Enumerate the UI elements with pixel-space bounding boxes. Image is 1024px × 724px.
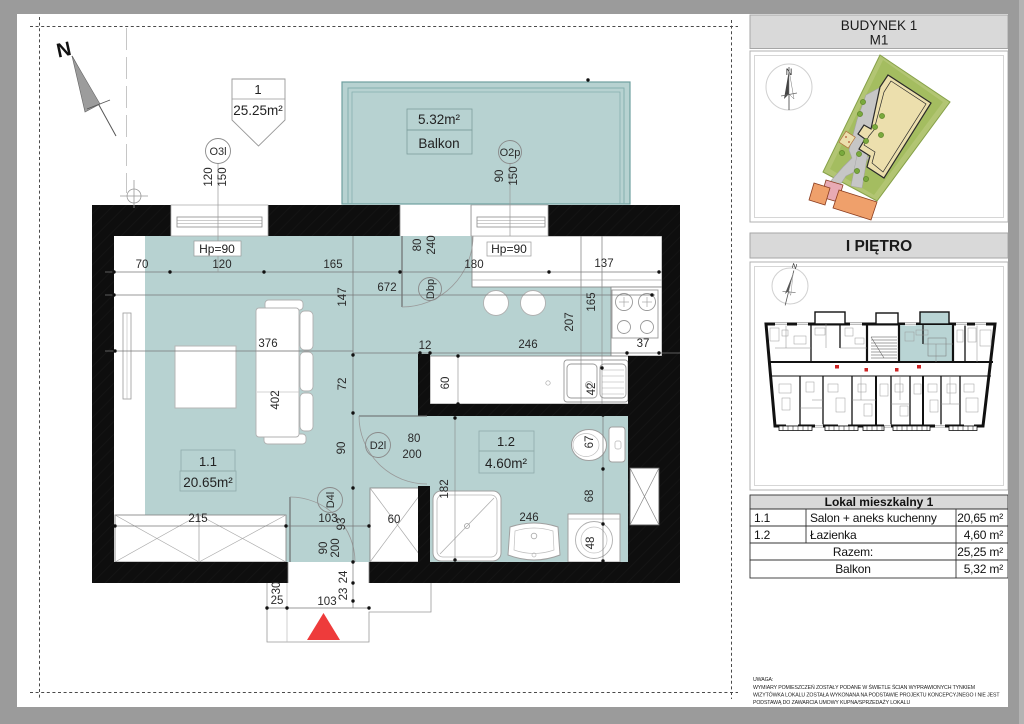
svg-text:68: 68 [584, 490, 596, 503]
svg-text:207: 207 [564, 312, 576, 331]
svg-text:103: 103 [317, 596, 336, 608]
svg-text:80: 80 [408, 433, 421, 445]
svg-text:4,60 m²: 4,60 m² [964, 528, 1003, 542]
svg-text:137: 137 [594, 258, 613, 270]
svg-text:67: 67 [584, 436, 596, 449]
svg-text:1.1: 1.1 [199, 454, 217, 469]
svg-text:60: 60 [388, 514, 401, 526]
svg-text:182: 182 [439, 479, 451, 498]
svg-text:376: 376 [258, 338, 277, 350]
svg-text:150: 150 [508, 166, 520, 185]
svg-text:20,65 m²: 20,65 m² [957, 511, 1003, 525]
svg-text:165: 165 [586, 292, 598, 311]
svg-text:48: 48 [585, 537, 597, 550]
svg-text:90: 90 [318, 542, 330, 555]
svg-text:150: 150 [217, 167, 229, 186]
svg-text:1.2: 1.2 [754, 528, 771, 542]
svg-text:402: 402 [270, 390, 282, 409]
svg-text:Dbp: Dbp [425, 279, 437, 299]
svg-text:672: 672 [377, 282, 396, 294]
svg-text:1.2: 1.2 [497, 434, 515, 449]
svg-text:90: 90 [494, 170, 506, 183]
svg-text:Balkon: Balkon [418, 136, 459, 151]
svg-text:M1: M1 [870, 33, 889, 48]
svg-text:180: 180 [464, 259, 483, 271]
svg-text:Balkon: Balkon [835, 562, 871, 576]
svg-text:93: 93 [336, 518, 348, 531]
svg-text:215: 215 [188, 513, 207, 525]
svg-text:5,32 m²: 5,32 m² [964, 562, 1003, 576]
svg-text:72: 72 [337, 378, 349, 391]
svg-text:246: 246 [519, 512, 538, 524]
svg-text:60: 60 [440, 377, 452, 390]
svg-text:5.32m²: 5.32m² [418, 112, 461, 127]
svg-text:Hp=90: Hp=90 [491, 242, 527, 256]
svg-text:D2l: D2l [370, 440, 387, 452]
svg-text:200: 200 [330, 538, 342, 557]
svg-text:200: 200 [402, 449, 421, 461]
svg-text:4.60m²: 4.60m² [485, 456, 528, 471]
svg-text:Hp=90: Hp=90 [199, 242, 235, 256]
svg-text:Razem:: Razem: [833, 545, 873, 559]
svg-text:37: 37 [637, 338, 650, 350]
svg-text:UWAGA:: UWAGA: [753, 677, 773, 683]
svg-text:I PIĘTRO: I PIĘTRO [846, 238, 912, 255]
svg-text:90: 90 [336, 442, 348, 455]
svg-text:Lokal mieszkalny 1: Lokal mieszkalny 1 [825, 495, 934, 509]
svg-text:165: 165 [323, 259, 342, 271]
svg-text:D4l: D4l [325, 492, 337, 509]
svg-text:WIZYTÓWKA LOKALU ZOSTAŁA WYKON: WIZYTÓWKA LOKALU ZOSTAŁA WYKONANA NA POD… [753, 692, 1000, 699]
svg-text:42: 42 [586, 383, 598, 396]
svg-text:PODSTAWĄ DO ZAWARCIA UMOWY KUP: PODSTAWĄ DO ZAWARCIA UMOWY KUPNA/SPRZEDA… [753, 699, 910, 706]
svg-text:25.25m²: 25.25m² [233, 103, 283, 118]
svg-text:80: 80 [412, 239, 424, 252]
svg-text:20.65m²: 20.65m² [183, 475, 233, 490]
svg-text:23: 23 [338, 588, 350, 601]
svg-text:Salon + aneks kuchenny: Salon + aneks kuchenny [810, 511, 937, 525]
svg-text:O2p: O2p [500, 147, 521, 159]
svg-text:240: 240 [426, 235, 438, 254]
svg-text:1.1: 1.1 [754, 511, 771, 525]
svg-text:120: 120 [203, 167, 215, 186]
svg-text:WYMIARY POMIESZCZEŃ ZOSTAŁY PO: WYMIARY POMIESZCZEŃ ZOSTAŁY PODANE W ŚWI… [753, 683, 975, 691]
svg-text:25,25 m²: 25,25 m² [957, 545, 1003, 559]
svg-text:246: 246 [518, 339, 537, 351]
svg-text:Łazienka: Łazienka [810, 528, 857, 542]
svg-text:147: 147 [337, 287, 349, 306]
svg-text:103: 103 [318, 513, 337, 525]
svg-text:1: 1 [254, 82, 261, 97]
svg-text:120: 120 [212, 259, 231, 271]
svg-text:25: 25 [271, 595, 284, 607]
svg-text:24: 24 [338, 570, 350, 583]
svg-text:BUDYNEK 1: BUDYNEK 1 [841, 18, 918, 33]
svg-text:12: 12 [419, 340, 432, 352]
svg-text:70: 70 [136, 259, 149, 271]
svg-text:30: 30 [271, 582, 283, 595]
svg-text:O3l: O3l [209, 146, 226, 158]
